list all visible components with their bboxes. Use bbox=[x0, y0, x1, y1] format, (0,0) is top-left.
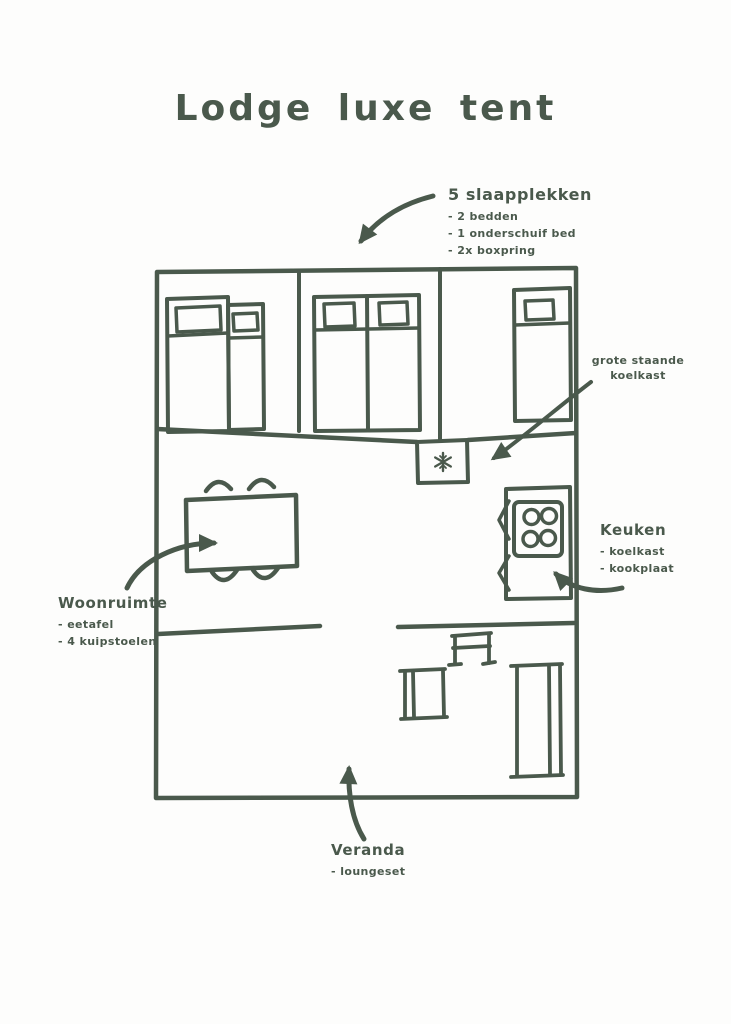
arrow-living bbox=[127, 543, 214, 588]
annotation-living-item: - eetafel bbox=[58, 616, 168, 633]
lounge-sofa bbox=[511, 664, 563, 777]
bed-double bbox=[314, 295, 420, 431]
bed-pullout bbox=[228, 304, 264, 430]
annotation-sleeping-item: - 2 bedden bbox=[448, 208, 592, 225]
lounge-chair bbox=[400, 669, 447, 719]
arrow-sleeping bbox=[361, 196, 433, 241]
annotation-fridge-line2: koelkast bbox=[586, 368, 690, 383]
annotation-sleeping-item: - 1 onderschuif bed bbox=[448, 225, 592, 242]
annotation-kitchen: Keuken - koelkast - kookplaat bbox=[600, 521, 674, 577]
annotation-veranda-heading: Veranda bbox=[331, 841, 405, 859]
annotation-living: Woonruimte - eetafel - 4 kuipstoelen bbox=[58, 594, 168, 650]
annotation-fridge-line1: grote staande bbox=[586, 353, 690, 368]
annotation-kitchen-item: - kookplaat bbox=[600, 560, 674, 577]
lounge-table bbox=[449, 633, 495, 665]
annotation-sleeping: 5 slaapplekken - 2 bedden - 1 onderschui… bbox=[448, 185, 592, 259]
annotation-living-heading: Woonruimte bbox=[58, 594, 168, 612]
veranda-divider bbox=[158, 623, 574, 634]
floorplan-page: Lodge luxe tent bbox=[0, 0, 731, 1024]
annotation-kitchen-heading: Keuken bbox=[600, 521, 674, 539]
annotation-sleeping-heading: 5 slaapplekken bbox=[448, 185, 592, 204]
bed-large bbox=[167, 297, 229, 432]
fridge-box bbox=[417, 440, 468, 483]
stove-icon bbox=[514, 502, 562, 556]
snowflake-icon bbox=[435, 453, 451, 471]
annotation-kitchen-item: - koelkast bbox=[600, 543, 674, 560]
kitchen-unit bbox=[499, 487, 571, 599]
arrow-veranda bbox=[349, 769, 364, 839]
annotation-living-item: - 4 kuipstoelen bbox=[58, 633, 168, 650]
annotation-veranda-item: - loungeset bbox=[331, 863, 405, 880]
dining-table bbox=[186, 495, 297, 571]
annotation-sleeping-item: - 2x boxpring bbox=[448, 242, 592, 259]
bed-single bbox=[514, 288, 571, 421]
annotation-fridge: grote staande koelkast bbox=[586, 353, 690, 383]
annotation-veranda: Veranda - loungeset bbox=[331, 841, 405, 880]
